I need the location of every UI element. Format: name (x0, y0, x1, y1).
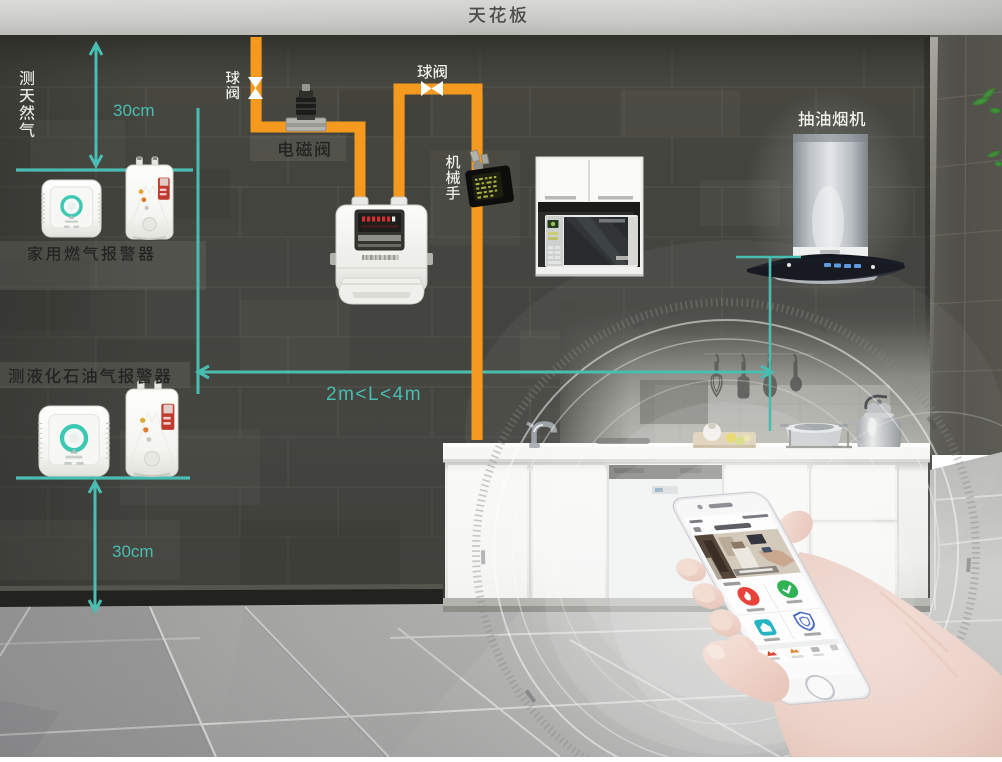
svg-text:30cm: 30cm (113, 101, 155, 120)
svg-text:2m<L<4m: 2m<L<4m (326, 384, 422, 405)
svg-text:30cm: 30cm (112, 542, 154, 561)
